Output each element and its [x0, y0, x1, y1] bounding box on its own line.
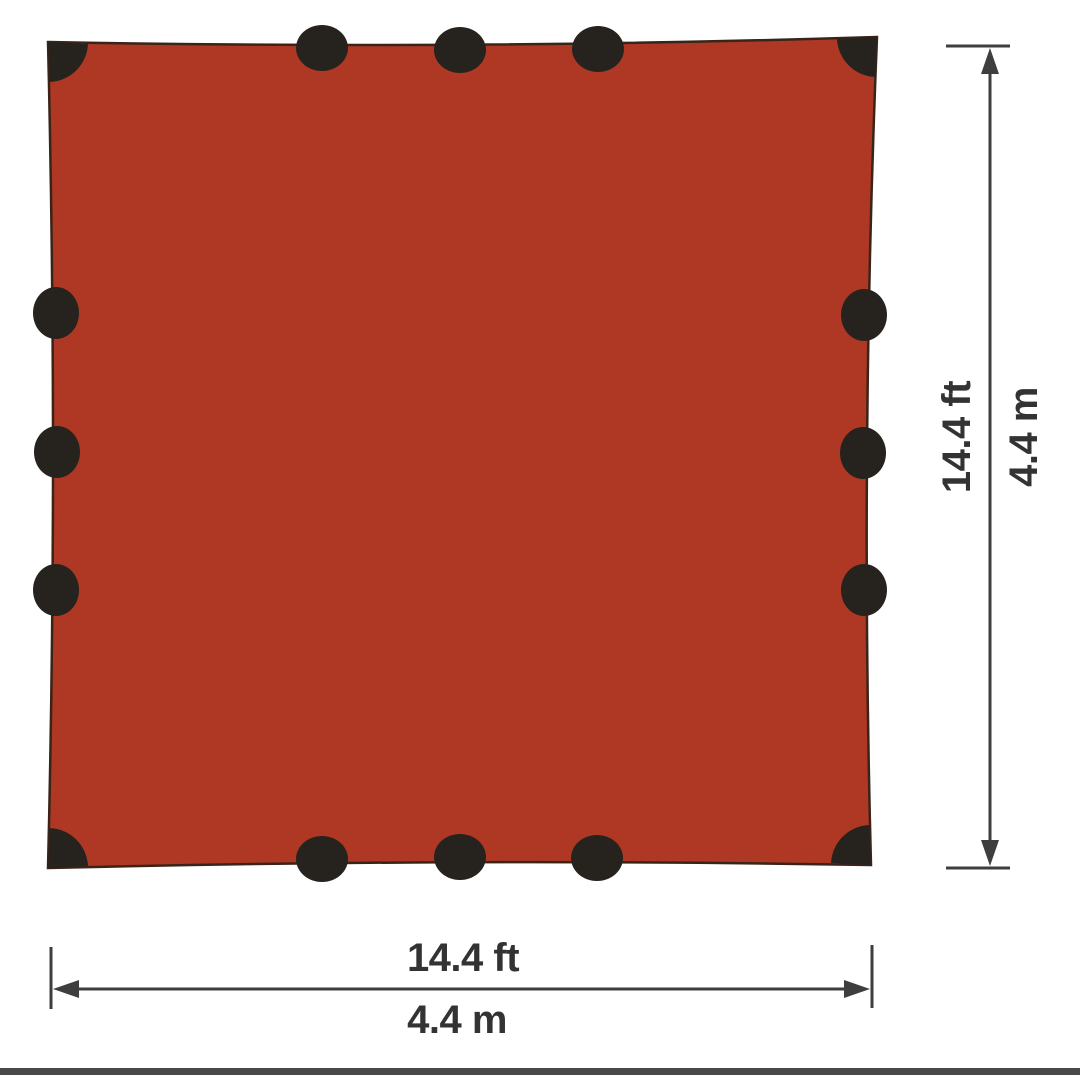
arrow-down-icon: [981, 840, 999, 866]
arrow-up-icon: [981, 48, 999, 74]
attachment-loop: [571, 835, 623, 881]
attachment-loop: [841, 289, 887, 341]
width-label-imperial: 14.4 ft: [407, 936, 519, 980]
width-label-metric: 4.4 m: [407, 998, 507, 1042]
product-dimension-diagram: 14.4 ft 4.4 m 14.4 ft 4.4 m: [0, 0, 1080, 1075]
tarp-shape: [48, 37, 877, 868]
arrow-right-icon: [844, 980, 870, 998]
attachment-loop: [33, 564, 79, 616]
footer-bar: [0, 1068, 1080, 1075]
attachment-loop: [840, 427, 886, 479]
attachment-loop: [841, 564, 887, 616]
arrow-left-icon: [53, 980, 79, 998]
attachment-loop: [434, 27, 486, 73]
attachment-loop: [33, 287, 79, 339]
tarp-diagram-svg: 14.4 ft 4.4 m 14.4 ft 4.4 m: [0, 0, 1080, 1075]
attachment-loop: [434, 834, 486, 880]
attachment-loop: [572, 26, 624, 72]
attachment-loop: [34, 426, 80, 478]
height-label-imperial: 14.4 ft: [935, 381, 979, 493]
attachment-loop: [296, 836, 348, 882]
height-label-metric: 4.4 m: [1002, 387, 1046, 487]
attachment-loop: [296, 25, 348, 71]
